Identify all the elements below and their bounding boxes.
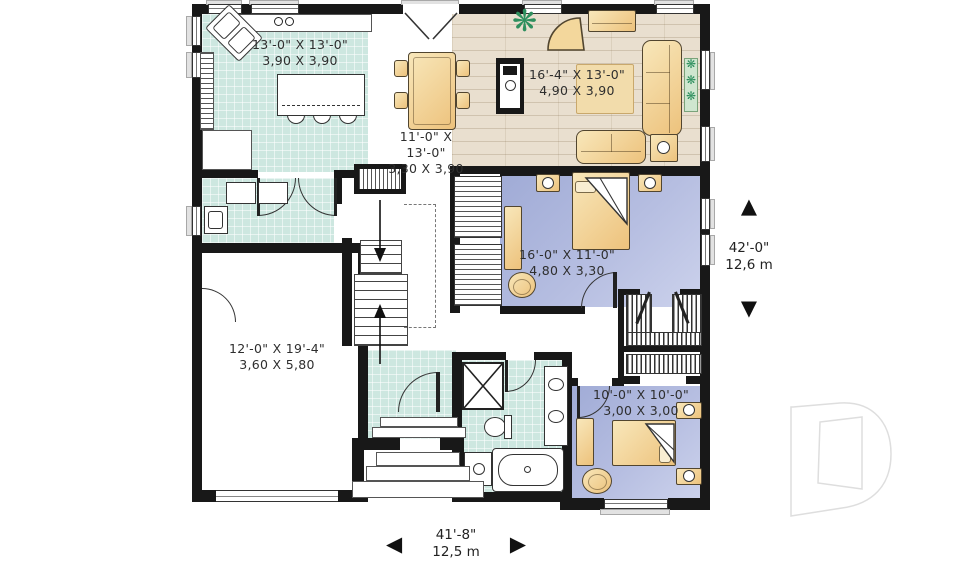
sofa-sectional [642, 40, 682, 136]
kitchen-dim-imperial: 13'-0" X 13'-0" [252, 37, 348, 52]
bedroom2-dim-imperial: 10'-0" X 10'-0" [593, 387, 689, 402]
depth-metric: 12,6 m [725, 257, 773, 273]
window-sill [710, 52, 715, 90]
arrow-down-icon: ▼ [741, 298, 757, 318]
bedroom2-closet-rod [626, 354, 702, 374]
laundry-sink [204, 206, 228, 234]
bedroom2-bed-fold [612, 420, 678, 468]
wall-closet-divider [624, 346, 702, 352]
garage-dim-imperial: 12'-0" X 19'-4" [229, 341, 325, 356]
nightstand-lamp [542, 177, 554, 189]
kitchen-side-window [192, 16, 201, 46]
wall-bedroom2-top-b [612, 378, 624, 386]
bath-door-leaf [505, 360, 508, 392]
kitchen-dim-metric: 3,90 X 3,90 [262, 53, 337, 68]
fan-armchair [544, 14, 586, 54]
arrow-left-icon: ◀ [386, 534, 402, 554]
bedroom2-dim-metric: 3,00 X 3,00 [603, 403, 678, 418]
kitchen-side-counter [200, 52, 214, 130]
window-sill [600, 509, 670, 515]
window-sill [710, 127, 715, 161]
living-side-window [701, 50, 710, 90]
bedroom2-chair [582, 468, 612, 494]
nightstand-lamp [644, 177, 656, 189]
vanity-sink [548, 378, 564, 391]
kitchen-label: 13'-0" X 13'-0" 3,90 X 3,90 [250, 37, 350, 69]
living-label: 16'-4" X 13'-0" 4,90 X 3,90 [524, 67, 630, 99]
bedroom2-window [604, 499, 668, 509]
bedroom2-dresser [576, 418, 594, 466]
wall-bath-top-b [534, 352, 568, 360]
width-dimension: ◀ 41'-8" 12,5 m ▶ [386, 524, 526, 564]
width-dimension-text: 41'-8" 12,5 m [432, 527, 480, 561]
width-metric: 12,5 m [432, 544, 480, 560]
dining-chair [394, 60, 408, 77]
stairs-up-arrow-icon [372, 304, 388, 366]
living-side-window [701, 126, 710, 162]
patio-double-door [403, 13, 459, 41]
stairs-down-arrow-icon [372, 200, 388, 264]
wall-master-bottom [500, 306, 585, 314]
wood-stove-fireplace [496, 58, 524, 114]
toilet [484, 417, 506, 437]
wall-stairs-left [342, 238, 352, 346]
master-closet-shelves [454, 244, 502, 306]
plant-shelf: ❋ ❋ ❋ [684, 58, 698, 112]
front-door-leaf [436, 372, 440, 412]
dining-chair [456, 92, 470, 109]
wall-garage-bottom-left [192, 490, 216, 502]
plant-icon: ❋ [686, 89, 696, 103]
dining-chair [456, 60, 470, 77]
nightstand-lamp [683, 470, 695, 482]
stair-opening-dashed [404, 204, 436, 328]
living-window [656, 4, 694, 14]
entry-step [380, 417, 458, 427]
wall-bedroom2-closet-b [686, 376, 702, 384]
shower [462, 362, 504, 410]
bathtub [492, 448, 564, 492]
entry-step [372, 427, 466, 438]
master-closet-shelves [454, 176, 502, 238]
kitchen-island [277, 74, 365, 116]
kitchen-pantry-cabinet [202, 130, 252, 170]
garage-dim-metric: 3,60 X 5,80 [239, 357, 314, 372]
master-window [701, 198, 710, 230]
dining-dim-imperial: 11'-0" X 13'-0" [400, 129, 453, 160]
arrow-right-icon: ▶ [510, 534, 526, 554]
garage-door-opening [216, 490, 338, 502]
bedroom2-door-leaf [577, 386, 580, 418]
wall-walkin-left [618, 289, 624, 380]
dryer [258, 182, 288, 204]
kitchen-window [251, 4, 299, 14]
washer [226, 182, 256, 204]
master-dim-imperial: 16'-0" X 11'-0" [519, 247, 615, 262]
master-window [701, 234, 710, 266]
living-dim-metric: 4,90 X 3,90 [539, 83, 614, 98]
vanity-sink [548, 410, 564, 423]
tv-cabinet [588, 10, 636, 32]
mudroom-side-window [192, 206, 201, 236]
wall-bedroom2-closet-a [624, 376, 640, 384]
mudroom-door-leaf-right [334, 178, 337, 216]
plant-icon: ❋ [686, 57, 696, 71]
dining-dim-metric: 3,30 X 3,90 [388, 161, 463, 176]
master-dim-metric: 4,80 X 3,30 [529, 263, 604, 278]
width-imperial: 41'-8" [436, 527, 477, 543]
table-lamp [657, 141, 670, 154]
master-bed-fold [572, 172, 632, 252]
garage-label: 12'-0" X 19'-4" 3,60 X 5,80 [224, 341, 330, 373]
wall-kitchen-mudroom-a [192, 170, 258, 178]
floor-plan-canvas: ❋ ❋ ❋ ❋ [0, 0, 960, 569]
shower-x-icon [464, 364, 502, 408]
stove-burners-icon [274, 17, 296, 29]
depth-dimension-text: 42'-0" 12,6 m [725, 240, 773, 274]
walkin-rod [626, 332, 702, 346]
dining-chair [394, 92, 408, 109]
dining-label: 11'-0" X 13'-0" 3,30 X 3,90 [378, 129, 474, 177]
porch-step [376, 452, 460, 466]
toilet-tank [504, 415, 512, 439]
depth-dimension: ▲ 42'-0" 12,6 m ▼ [712, 196, 786, 318]
porch-step [352, 481, 484, 498]
master-bedroom-label: 16'-0" X 11'-0" 4,80 X 3,30 [514, 247, 620, 279]
garage-side-door-swing [202, 288, 236, 322]
arrow-up-icon: ▲ [741, 196, 757, 216]
depth-imperial: 42'-0" [729, 240, 770, 256]
wall-bedroom2-bottom-right [668, 498, 710, 510]
plant-icon: ❋ [686, 73, 696, 87]
loveseat [576, 130, 646, 164]
living-dim-imperial: 16'-4" X 13'-0" [529, 67, 625, 82]
bedroom2-label: 10'-0" X 10'-0" 3,00 X 3,00 [586, 387, 696, 419]
dining-table [408, 52, 456, 130]
porch-step [366, 466, 470, 481]
plant-icon: ❋ [512, 4, 537, 39]
drummond-d-logo-watermark [784, 392, 906, 518]
